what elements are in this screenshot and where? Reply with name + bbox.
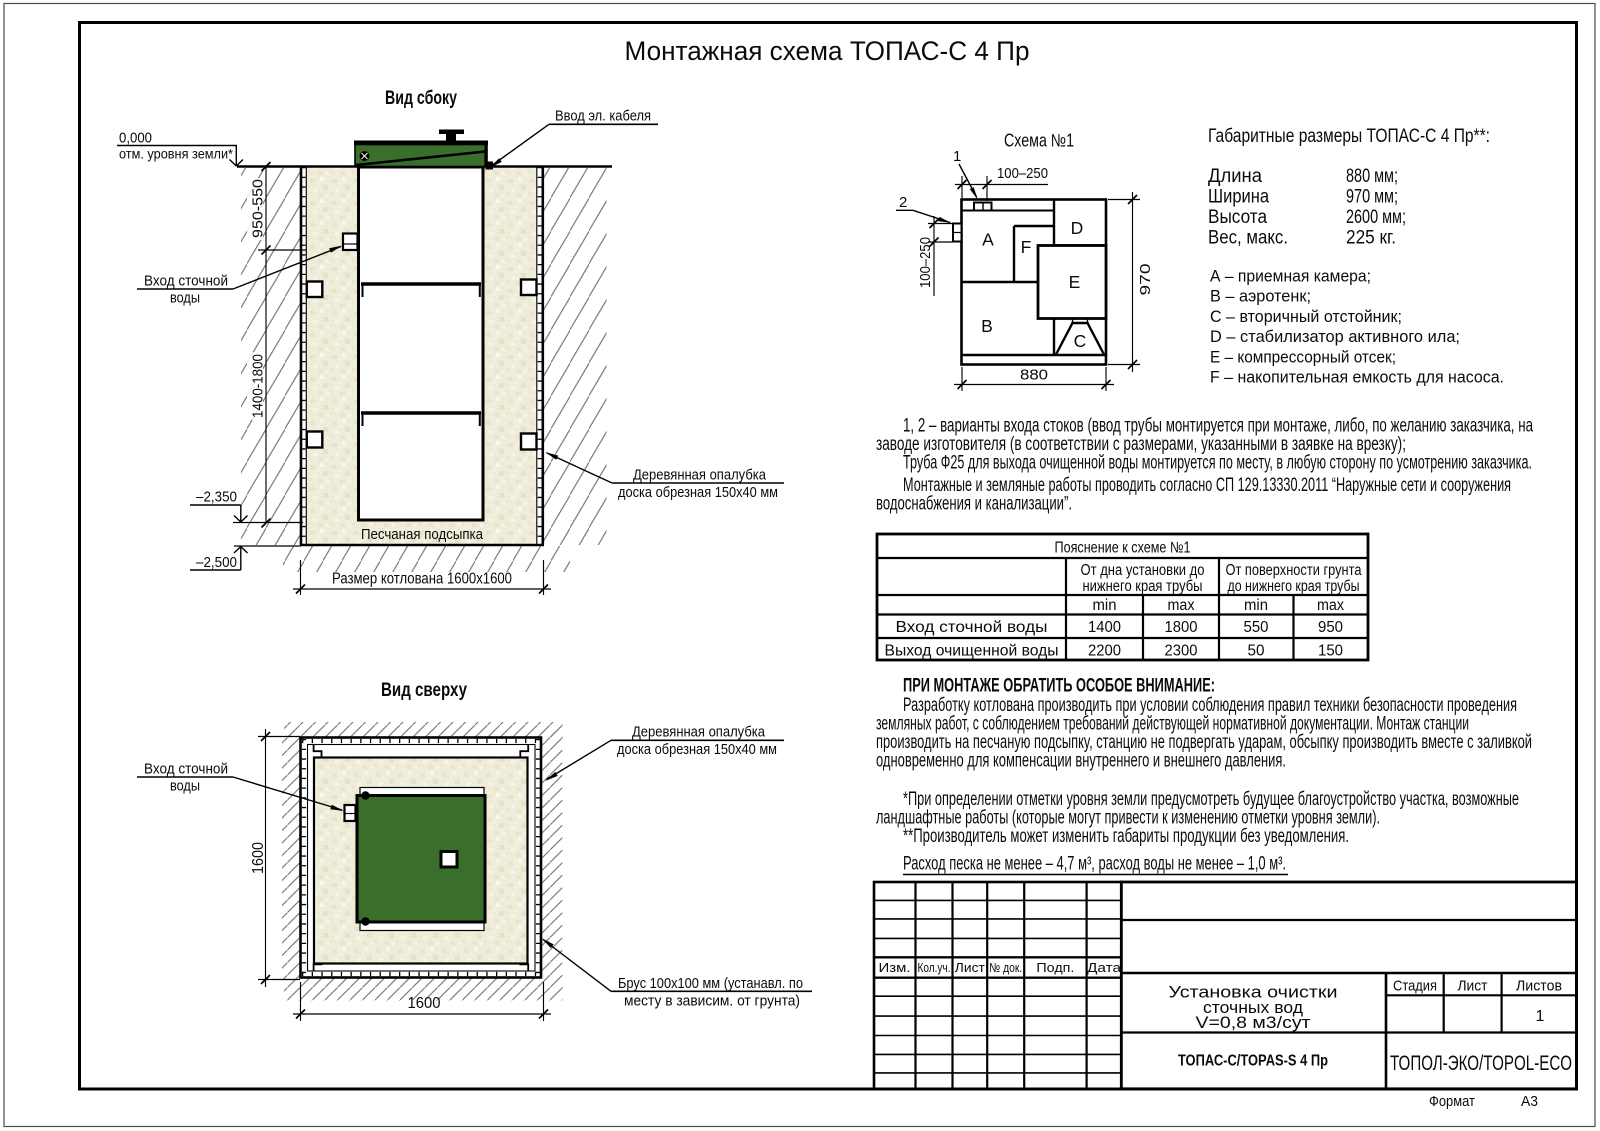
svg-text:max: max — [1317, 597, 1344, 614]
svg-text:до нижнего края трубы: до нижнего края трубы — [1228, 578, 1360, 595]
svg-text:B: B — [981, 316, 993, 336]
svg-text:доска обрезная 150х40 мм: доска обрезная 150х40 мм — [617, 741, 777, 758]
svg-text:Ширина: Ширина — [1208, 187, 1269, 208]
svg-text:Вход сточной: Вход сточной — [144, 273, 228, 290]
svg-text:100–250: 100–250 — [917, 237, 934, 288]
svg-text:F – накопительная емкость для: F – накопительная емкость для насоса. — [1210, 368, 1504, 387]
svg-text:D – стабилизатор активного ила: D – стабилизатор активного ила; — [1210, 327, 1460, 346]
svg-text:550: 550 — [1244, 619, 1269, 636]
svg-text:ПРИ МОНТАЖЕ ОБРАТИТЬ ОСОБОЕ ВН: ПРИ МОНТАЖЕ ОБРАТИТЬ ОСОБОЕ ВНИМАНИЕ: — [903, 676, 1215, 697]
svg-text:2: 2 — [899, 194, 907, 211]
svg-text:Выход очищенной воды: Выход очищенной воды — [885, 643, 1059, 660]
svg-text:Подп.: Подп. — [1036, 960, 1074, 975]
svg-text:Формат: Формат — [1429, 1093, 1475, 1110]
svg-text:C: C — [1074, 331, 1087, 351]
svg-text:Дата: Дата — [1087, 960, 1122, 975]
svg-text:1: 1 — [1536, 1008, 1545, 1025]
svg-text:**Производитель может изменить: **Производитель может изменить габариты … — [903, 826, 1349, 847]
svg-text:Расход песка не менее – 4,7 м³: Расход песка не менее – 4,7 м³, расход в… — [903, 854, 1286, 875]
svg-text:max: max — [1168, 597, 1195, 614]
svg-text:нижнего края трубы: нижнего края трубы — [1083, 578, 1203, 595]
svg-text:Лист: Лист — [1458, 979, 1488, 995]
svg-text:A: A — [982, 230, 994, 250]
svg-text:Вес, макс.: Вес, макс. — [1208, 228, 1288, 249]
svg-text:2300: 2300 — [1165, 643, 1198, 660]
svg-text:Вход сточной воды: Вход сточной воды — [896, 619, 1048, 636]
svg-text:Деревянная опалубка: Деревянная опалубка — [632, 724, 766, 741]
svg-text:1600: 1600 — [408, 995, 441, 1012]
svg-text:А3: А3 — [1521, 1093, 1538, 1110]
svg-text:880 мм;: 880 мм; — [1346, 166, 1398, 187]
svg-text:Ввод эл. кабеля: Ввод эл. кабеля — [555, 108, 651, 125]
svg-text:1800: 1800 — [1165, 619, 1198, 636]
svg-text:ТОПОЛ-ЭКО/TOPOL-ECO: ТОПОЛ-ЭКО/TOPOL-ECO — [1390, 1052, 1572, 1075]
svg-text:min: min — [1244, 597, 1268, 614]
svg-text:2200: 2200 — [1088, 643, 1121, 660]
svg-text:Вход сточной: Вход сточной — [144, 761, 228, 778]
svg-text:Схема №1: Схема №1 — [1004, 131, 1074, 151]
svg-text:Лист: Лист — [955, 960, 985, 975]
svg-text:D: D — [1071, 218, 1084, 238]
svg-text:100–250: 100–250 — [997, 165, 1048, 182]
svg-text:Размер котлована 1600х1600: Размер котлована 1600х1600 — [332, 571, 512, 588]
svg-text:Труба Ф25 для выхода очищенной: Труба Ф25 для выхода очищенной воды монт… — [903, 453, 1532, 474]
svg-text:Брус 100х100 мм (устанавл. по: Брус 100х100 мм (устанавл. по — [618, 975, 803, 992]
svg-text:1400-1800: 1400-1800 — [250, 354, 267, 418]
svg-text:Кол.уч.: Кол.уч. — [918, 960, 951, 975]
svg-text:970 мм;: 970 мм; — [1346, 187, 1398, 208]
svg-text:ТОПАС-С/TOPAS-S 4 Пр: ТОПАС-С/TOPAS-S 4 Пр — [1178, 1053, 1328, 1070]
svg-text:min: min — [1093, 597, 1117, 614]
svg-text:1: 1 — [953, 148, 961, 165]
svg-text:Пояснение к схеме №1: Пояснение к схеме №1 — [1055, 540, 1191, 557]
svg-text:воды: воды — [170, 778, 200, 795]
svg-text:–2,500: –2,500 — [196, 554, 237, 571]
svg-text:Песчаная подсыпка: Песчаная подсыпка — [361, 526, 484, 543]
svg-text:Вид сверху: Вид сверху — [381, 680, 467, 701]
svg-text:Длина: Длина — [1208, 166, 1262, 187]
svg-text:А – приемная камера;: А – приемная камера; — [1210, 267, 1371, 286]
svg-text:Е – компрессорный отсек;: Е – компрессорный отсек; — [1210, 348, 1396, 367]
svg-text:50: 50 — [1248, 643, 1265, 660]
svg-text:От поверхности грунта: От поверхности грунта — [1226, 562, 1362, 579]
svg-text:2600 мм;: 2600 мм; — [1346, 207, 1406, 228]
svg-text:№ док.: № док. — [989, 960, 1022, 975]
svg-text:950: 950 — [1318, 619, 1343, 636]
svg-text:970: 970 — [1137, 264, 1154, 296]
svg-text:Листов: Листов — [1516, 979, 1562, 995]
svg-text:Габаритные размеры ТОПАС-С 4 П: Габаритные размеры ТОПАС-С 4 Пр**: — [1208, 126, 1490, 147]
svg-text:F: F — [1021, 237, 1032, 257]
svg-text:880: 880 — [1020, 367, 1048, 384]
svg-text:Деревянная опалубка: Деревянная опалубка — [633, 467, 767, 484]
svg-text:В – аэротенк;: В – аэротенк; — [1210, 287, 1311, 306]
svg-text:–2,350: –2,350 — [196, 489, 237, 506]
svg-text:1400: 1400 — [1088, 619, 1121, 636]
svg-text:водоснабжения и канализации”.: водоснабжения и канализации”. — [876, 494, 1072, 515]
svg-text:месту в зависим. от грунта): месту в зависим. от грунта) — [624, 993, 800, 1010]
svg-text:0,000: 0,000 — [119, 130, 152, 147]
svg-text:отм. уровня земли*: отм. уровня земли* — [119, 147, 234, 162]
svg-text:Монтажная схема ТОПАС-С 4 Пр: Монтажная схема ТОПАС-С 4 Пр — [625, 36, 1030, 66]
svg-text:Вид сбоку: Вид сбоку — [385, 88, 457, 109]
svg-text:225 кг.: 225 кг. — [1346, 228, 1396, 249]
svg-text:С – вторичный отстойник;: С – вторичный отстойник; — [1210, 307, 1402, 326]
svg-text:Высота: Высота — [1208, 207, 1267, 228]
svg-text:1600: 1600 — [250, 842, 267, 874]
svg-text:Изм.: Изм. — [879, 960, 911, 975]
svg-text:150: 150 — [1318, 643, 1343, 660]
svg-text:одновременно для компенсации в: одновременно для компенсации внутреннего… — [876, 751, 1286, 772]
svg-text:V=0,8 м3/сут: V=0,8 м3/сут — [1196, 1013, 1311, 1032]
svg-text:950-550: 950-550 — [250, 179, 267, 238]
svg-text:воды: воды — [170, 290, 200, 307]
svg-text:доска обрезная 150х40 мм: доска обрезная 150х40 мм — [618, 484, 778, 501]
svg-text:E: E — [1069, 272, 1081, 292]
svg-text:От дна установки до: От дна установки до — [1081, 562, 1205, 579]
svg-text:Стадия: Стадия — [1393, 979, 1437, 995]
